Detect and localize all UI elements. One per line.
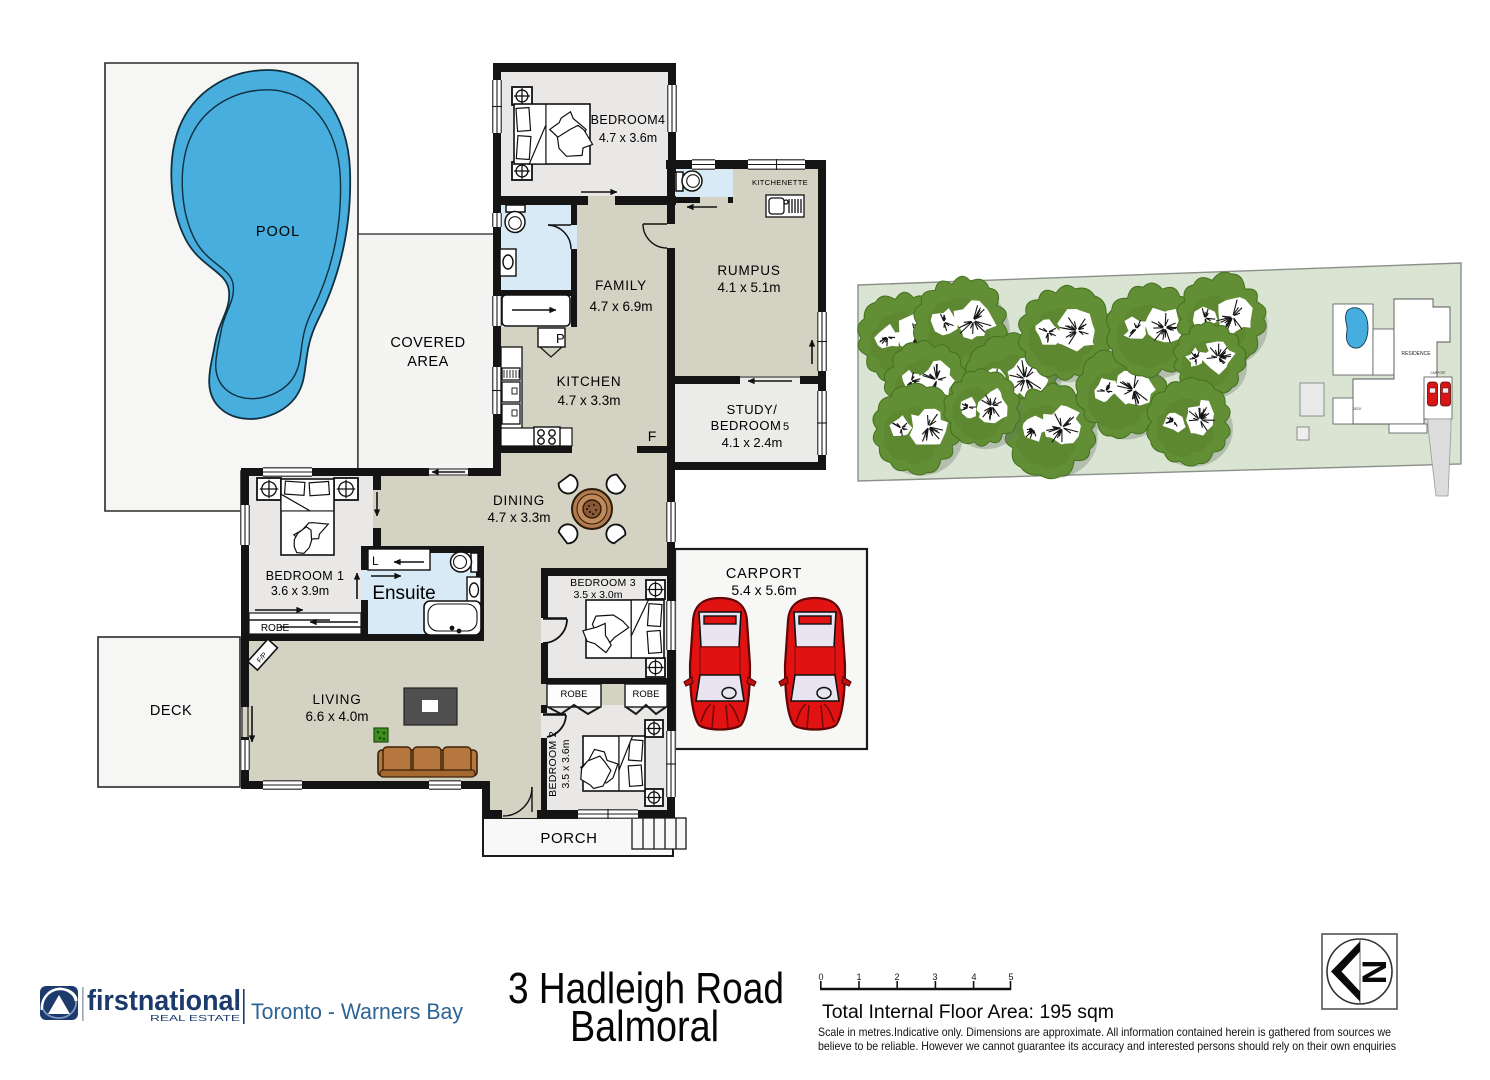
svg-text:N: N [1356,960,1394,985]
svg-text:BEDROOM4: BEDROOM4 [591,113,666,127]
svg-text:KITCHENETTE: KITCHENETTE [752,178,808,187]
svg-text:LIVING: LIVING [312,692,361,707]
svg-text:BEDROOM 2: BEDROOM 2 [547,731,559,797]
svg-text:5.4 x 5.6m: 5.4 x 5.6m [731,582,796,598]
svg-text:STUDY/: STUDY/ [727,402,778,417]
svg-text:RESIDENCE: RESIDENCE [1401,351,1431,357]
svg-text:1: 1 [856,972,861,982]
svg-text:F: F [648,428,657,444]
svg-text:BEDROOM: BEDROOM [711,418,782,433]
svg-text:CARPORT: CARPORT [1430,371,1446,375]
svg-text:KITCHEN: KITCHEN [557,374,622,389]
svg-text:AREA: AREA [407,354,449,370]
svg-text:FAMILY: FAMILY [595,278,647,293]
svg-text:0: 0 [818,972,823,982]
svg-text:6.6 x 4.0m: 6.6 x 4.0m [305,709,368,724]
svg-text:Ensuite: Ensuite [372,583,435,604]
svg-text:4.1 x 2.4m: 4.1 x 2.4m [722,435,783,450]
svg-text:COVERED: COVERED [390,335,465,351]
svg-text:RUMPUS: RUMPUS [717,263,780,278]
svg-text:4.7 x 3.3m: 4.7 x 3.3m [557,393,620,408]
svg-text:believe to be reliable. Howeve: believe to be reliable. However we canno… [818,1039,1396,1053]
svg-text:ROBE: ROBE [561,689,588,700]
svg-text:PORCH: PORCH [540,830,597,847]
svg-text:DINING: DINING [493,493,545,508]
svg-text:POOL: POOL [256,224,300,240]
svg-text:4.1 x 5.1m: 4.1 x 5.1m [717,280,780,295]
svg-text:DECK: DECK [1353,407,1363,411]
svg-text:L: L [372,554,379,568]
svg-text:REAL ESTATE: REAL ESTATE [150,1014,240,1023]
svg-text:4.7 x 6.9m: 4.7 x 6.9m [589,299,652,314]
svg-text:P: P [556,331,565,346]
svg-text:5: 5 [783,421,789,433]
svg-text:3.5 x 3.0m: 3.5 x 3.0m [573,589,622,601]
svg-text:CARPORT: CARPORT [726,566,802,582]
svg-text:5: 5 [1008,972,1013,982]
svg-text:4.7 x 3.6m: 4.7 x 3.6m [599,131,657,145]
svg-text:3.5 x 3.6m: 3.5 x 3.6m [560,739,572,788]
svg-text:firstnational: firstnational [87,985,241,1017]
svg-text:3: 3 [932,972,937,982]
svg-text:2: 2 [894,972,899,982]
svg-text:Toronto - Warners Bay: Toronto - Warners Bay [251,999,463,1024]
svg-text:ROBE: ROBE [261,623,290,634]
svg-text:4.7 x 3.3m: 4.7 x 3.3m [487,510,550,525]
svg-text:Total Internal Floor Area: 195: Total Internal Floor Area: 195 sqm [822,1002,1114,1023]
svg-text:Scale in metres.Indicative onl: Scale in metres.Indicative only. Dimensi… [818,1025,1391,1039]
svg-text:ROBE: ROBE [633,689,660,700]
svg-text:Balmoral: Balmoral [570,1002,719,1051]
svg-text:4: 4 [971,972,976,982]
svg-text:BEDROOM 3: BEDROOM 3 [570,577,636,589]
svg-text:3.6 x 3.9m: 3.6 x 3.9m [271,584,329,598]
svg-text:BEDROOM 1: BEDROOM 1 [266,569,345,583]
svg-text:DECK: DECK [150,703,192,719]
